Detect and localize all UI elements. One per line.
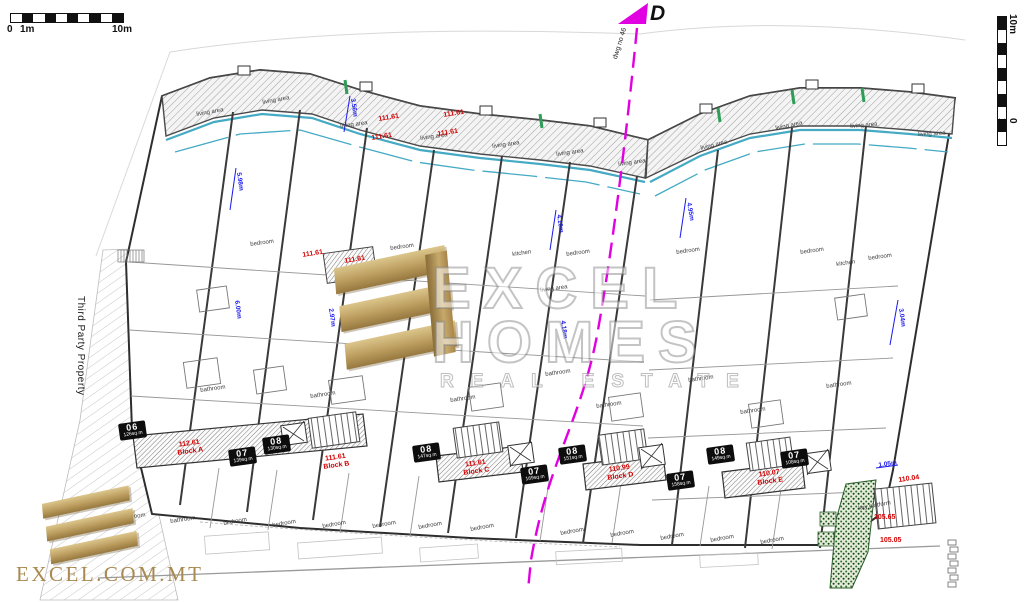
section-arrow-flag xyxy=(618,3,648,24)
watermark-real-estate-text: REAL ESTATE xyxy=(440,372,756,391)
third-party-property-label: Third Party Property xyxy=(75,296,86,395)
website-label: EXCEL.COM.MT xyxy=(16,562,204,587)
scale-1m-label: 1m xyxy=(20,24,34,35)
scale-right-10m-label: 10m xyxy=(1007,14,1018,34)
scale-bar-horizontal xyxy=(10,13,124,23)
section-d-label: D xyxy=(650,2,665,26)
scale-10m-label: 10m xyxy=(112,24,132,35)
watermark-homes-text: HOMES xyxy=(432,314,710,372)
excel-homes-logo-footer xyxy=(41,490,146,562)
floor-plan-page: living arealiving arealiving arealiving … xyxy=(0,0,1024,602)
scale-zero-label: 0 xyxy=(7,24,13,35)
scale-right-0-1m-label: 0 1m xyxy=(996,118,1018,132)
